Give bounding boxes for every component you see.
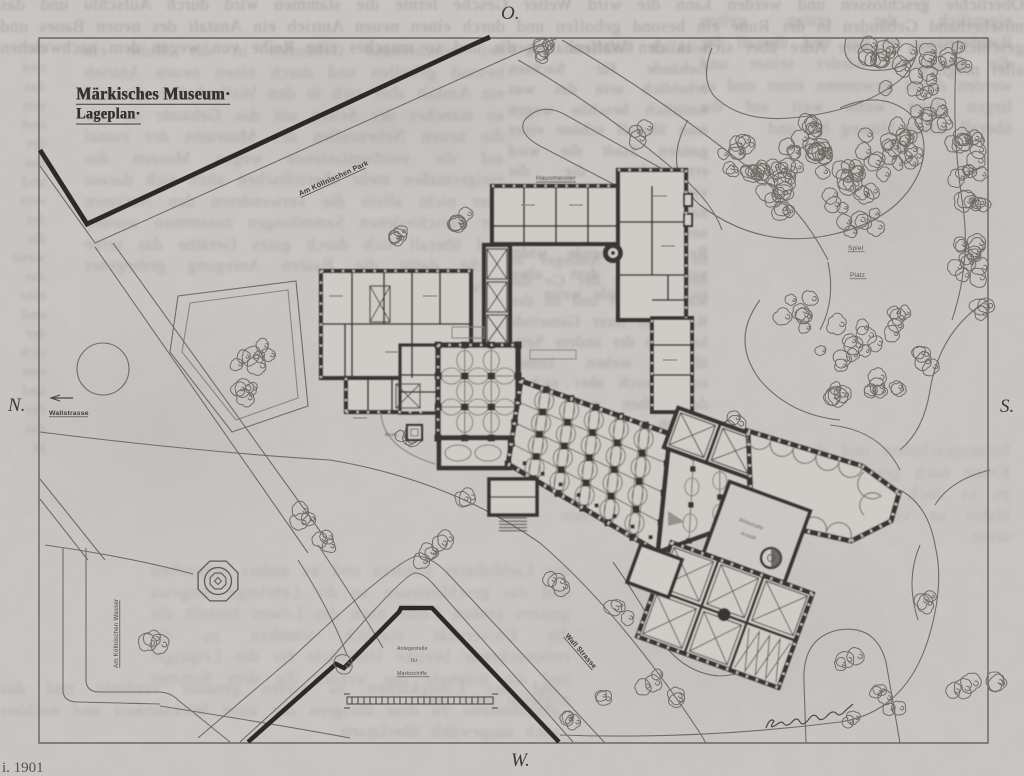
svg-text:Hausmeister: Hausmeister [536,175,576,182]
svg-text:für: für [411,658,418,664]
svg-text:Spiel: Spiel [848,245,863,252]
svg-text:Platz: Platz [850,272,865,279]
svg-text:Brunn.: Brunn. [385,432,399,437]
svg-text:Am Köllnischen Wasser: Am Köllnischen Wasser [113,599,120,668]
svg-text:Marktschiffe: Marktschiffe [397,671,427,677]
svg-text:Wallstrasse: Wallstrasse [49,410,89,417]
svg-text:Anlegestelle: Anlegestelle [397,646,428,652]
